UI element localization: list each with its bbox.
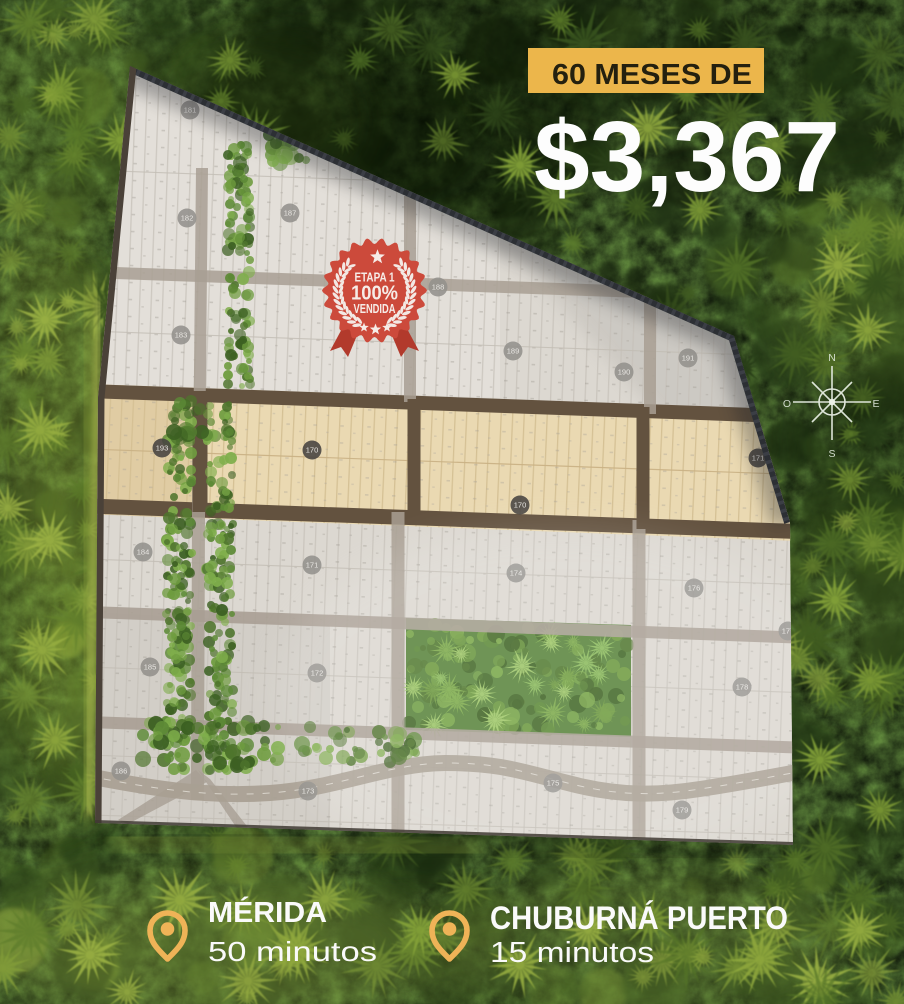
svg-text:185: 185 (144, 663, 157, 672)
svg-text:50 minutos: 50 minutos (208, 936, 377, 967)
svg-text:170: 170 (514, 501, 527, 510)
svg-text:187: 187 (284, 209, 297, 218)
svg-text:171: 171 (306, 561, 319, 570)
svg-text:183: 183 (175, 331, 188, 340)
svg-text:184: 184 (137, 548, 150, 557)
svg-text:182: 182 (181, 214, 194, 223)
svg-text:189: 189 (507, 347, 520, 356)
svg-text:S: S (828, 448, 835, 460)
svg-text:190: 190 (618, 368, 631, 377)
svg-text:$3,367: $3,367 (534, 101, 840, 213)
svg-text:E: E (872, 398, 879, 410)
svg-text:15 minutos: 15 minutos (490, 937, 654, 969)
svg-text:O: O (783, 398, 791, 410)
svg-text:60 MESES DE: 60 MESES DE (552, 59, 752, 91)
svg-text:188: 188 (432, 283, 445, 292)
svg-text:186: 186 (115, 767, 128, 776)
svg-text:170: 170 (306, 446, 319, 455)
svg-text:193: 193 (156, 444, 169, 453)
svg-text:191: 191 (682, 354, 695, 363)
svg-text:N: N (828, 352, 836, 364)
svg-text:VENDIDA: VENDIDA (354, 302, 396, 316)
svg-text:CHUBURNÁ PUERTO: CHUBURNÁ PUERTO (490, 900, 788, 936)
svg-text:MÉRIDA: MÉRIDA (208, 895, 327, 929)
